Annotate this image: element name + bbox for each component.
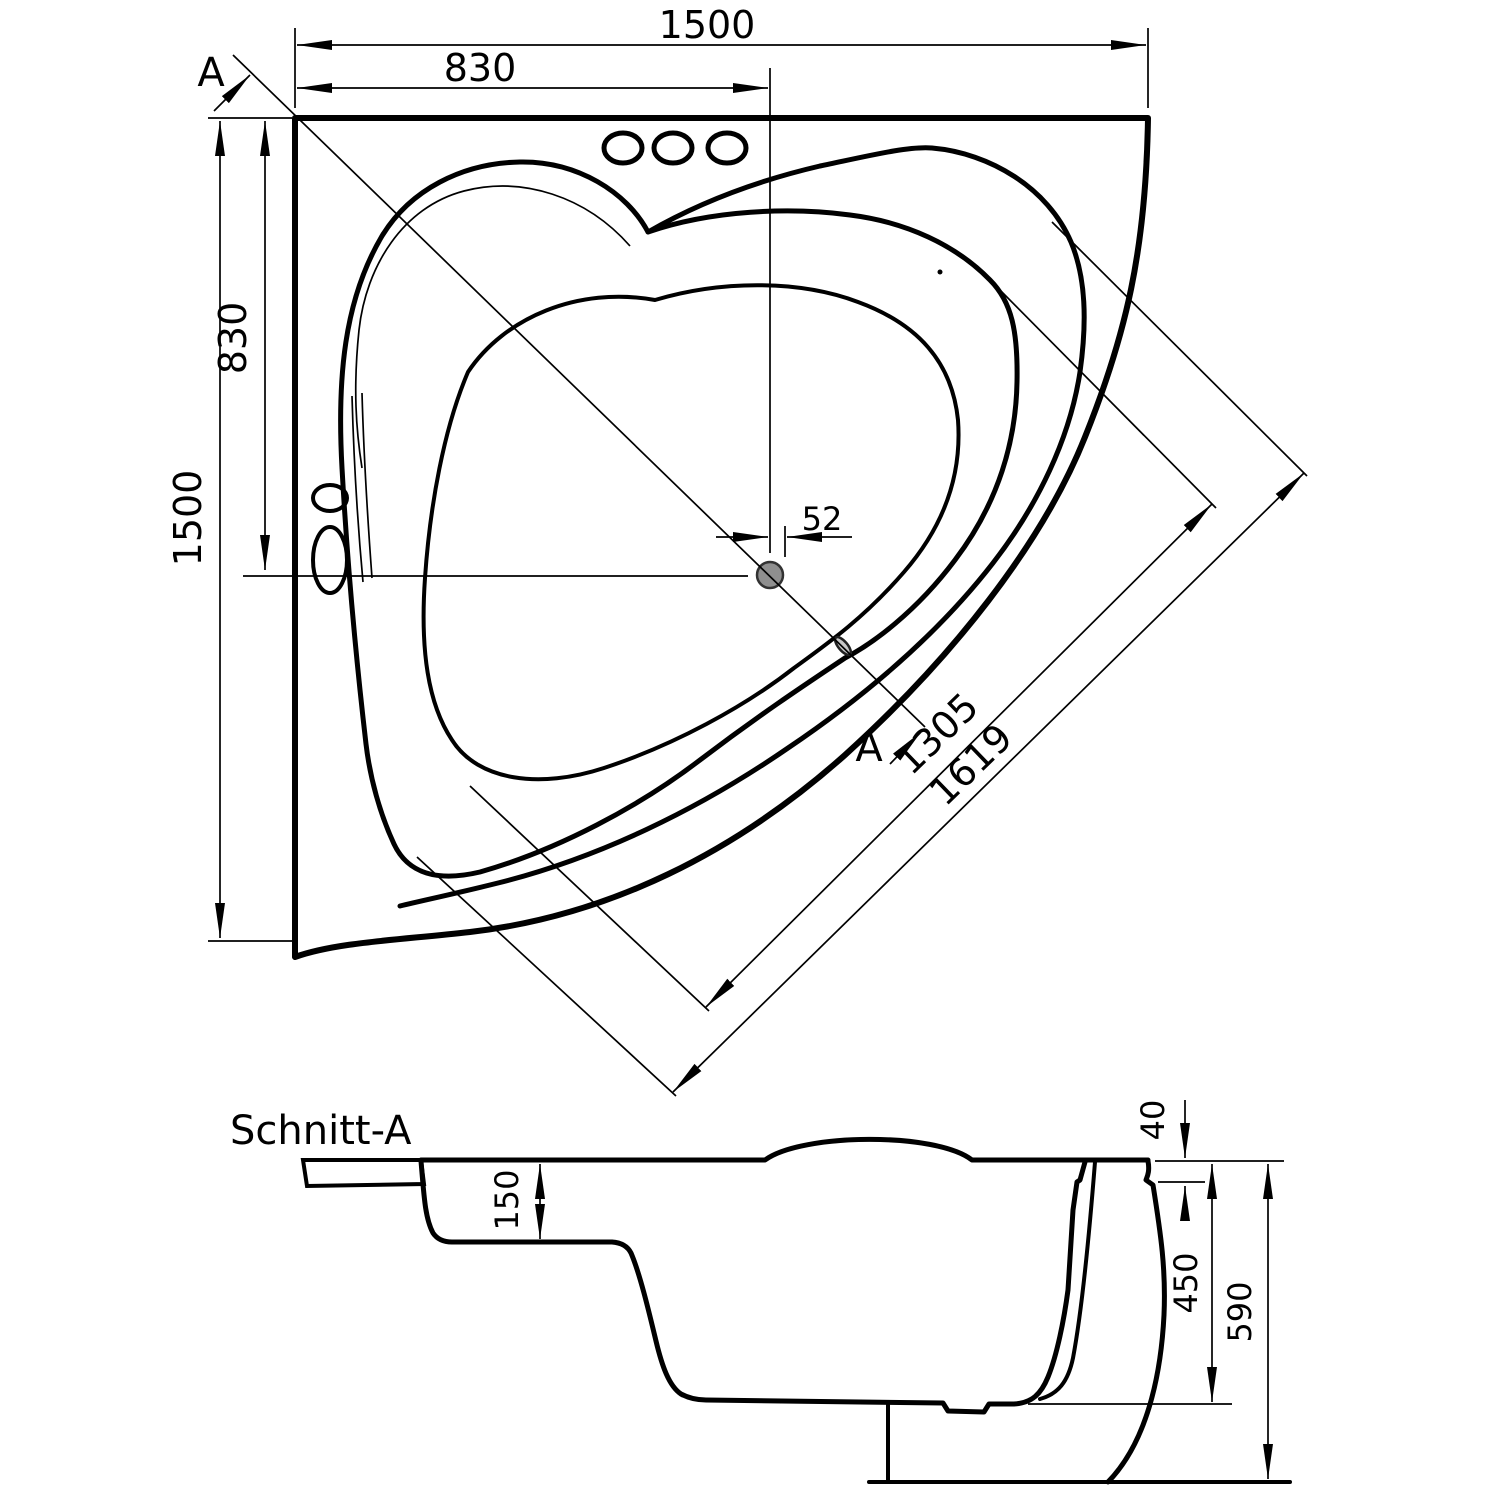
dim-450-label: 450 [1167, 1252, 1205, 1313]
left-deck-line-2 [362, 393, 372, 578]
dim-830-top-label: 830 [444, 46, 517, 90]
section-marker-a-mid: A [855, 725, 883, 771]
section-rim-wedge [303, 1160, 424, 1186]
dim-150-label: 150 [488, 1169, 526, 1230]
dim-830-left-label: 830 [211, 302, 255, 375]
faucet-hole-3 [708, 133, 746, 163]
section-cut-line [233, 55, 925, 727]
basin-floor-contour [424, 285, 959, 779]
ext-line-1305-upper [992, 282, 1216, 508]
drain [757, 562, 783, 588]
section-title: Schnitt-A [230, 1108, 412, 1154]
section-outer-skirt [1108, 1161, 1164, 1482]
left-rim-hole-large [313, 527, 347, 593]
small-marker-dot [938, 270, 943, 275]
section-view: Schnitt-A 40 150 450 590 [230, 1100, 1290, 1482]
deck-inner-edge [400, 148, 1084, 906]
ext-line-1305-lower [470, 786, 709, 1011]
dim-52-label: 52 [802, 500, 843, 538]
dim-590-label: 590 [1221, 1281, 1259, 1342]
dim-1500-top-label: 1500 [659, 3, 756, 47]
drawing-page: A A 1500 830 52 1500 830 1305 1619 [0, 0, 1500, 1500]
ext-line-1619-upper [1052, 222, 1307, 476]
headrest-offset-line [356, 186, 630, 468]
top-view: A A 1500 830 52 1500 830 1305 1619 [166, 3, 1307, 1096]
section-top-rim [421, 1139, 1148, 1160]
ext-line-1619-lower [417, 857, 676, 1096]
faucet-hole-2 [654, 133, 692, 163]
faucet-hole-1 [604, 133, 642, 163]
dim-40-label: 40 [1134, 1100, 1172, 1141]
section-marker-a-top: A [197, 50, 225, 96]
bathtub-technical-drawing: A A 1500 830 52 1500 830 1305 1619 [0, 0, 1500, 1500]
dim-1500-left-label: 1500 [166, 470, 210, 567]
